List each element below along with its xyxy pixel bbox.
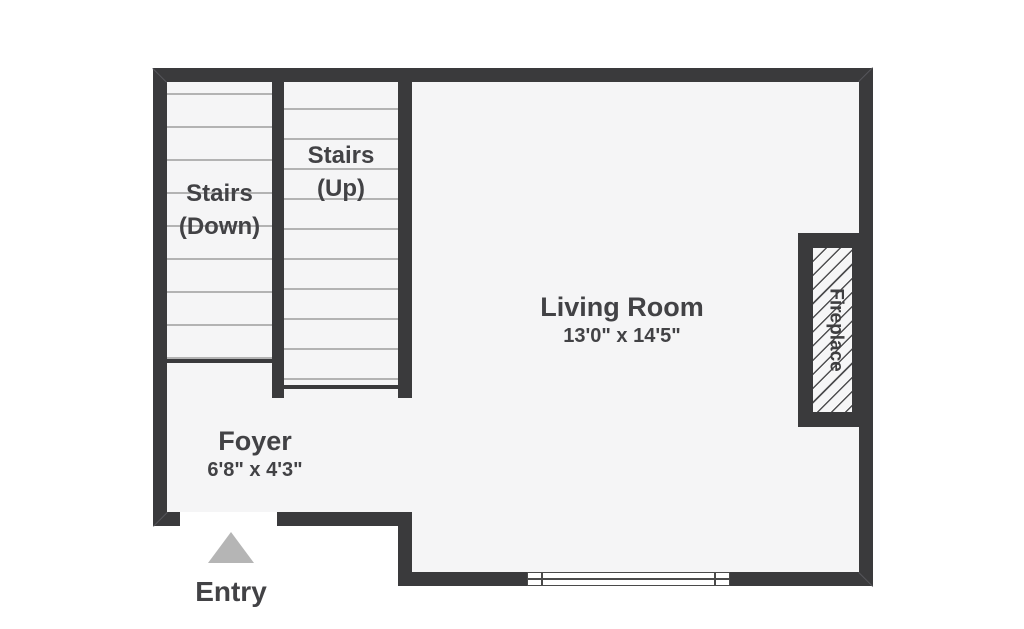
living-room-dimensions: 13'0" x 14'5": [402, 325, 842, 348]
wall-stairs-right: [398, 82, 412, 398]
stairs-up-label-line2: (Up): [281, 172, 401, 205]
window-mullion-left: [541, 573, 543, 585]
stairs-up-edge: [284, 385, 398, 389]
stairs-up-area: [284, 82, 398, 385]
entry-arrow-icon: [208, 532, 254, 563]
entry-label: Entry: [161, 576, 301, 608]
living-room-label: Living Room 13'0" x 14'5": [402, 292, 842, 348]
stairs-down-label-line1: Stairs: [160, 177, 279, 210]
window: [527, 572, 730, 586]
wall-top: [153, 68, 873, 82]
window-mullion-right: [714, 573, 716, 585]
foyer-dimensions: 6'8" x 4'3": [155, 459, 355, 482]
living-room-title: Living Room: [402, 292, 842, 322]
stairs-down-label-line2: (Down): [160, 210, 279, 243]
stairs-up-label: Stairs (Up): [281, 139, 401, 205]
entry-door-opening: [180, 512, 277, 526]
stairs-up-label-line1: Stairs: [281, 139, 401, 172]
stairs-down-edge: [167, 359, 272, 363]
foyer-title: Foyer: [155, 426, 355, 456]
floorplan-canvas: Fireplace Stairs (Down) Stairs (Up) Livi…: [0, 0, 1024, 629]
window-glass-line: [528, 578, 729, 580]
foyer-label: Foyer 6'8" x 4'3": [155, 426, 355, 482]
stairs-down-label: Stairs (Down): [160, 177, 279, 243]
